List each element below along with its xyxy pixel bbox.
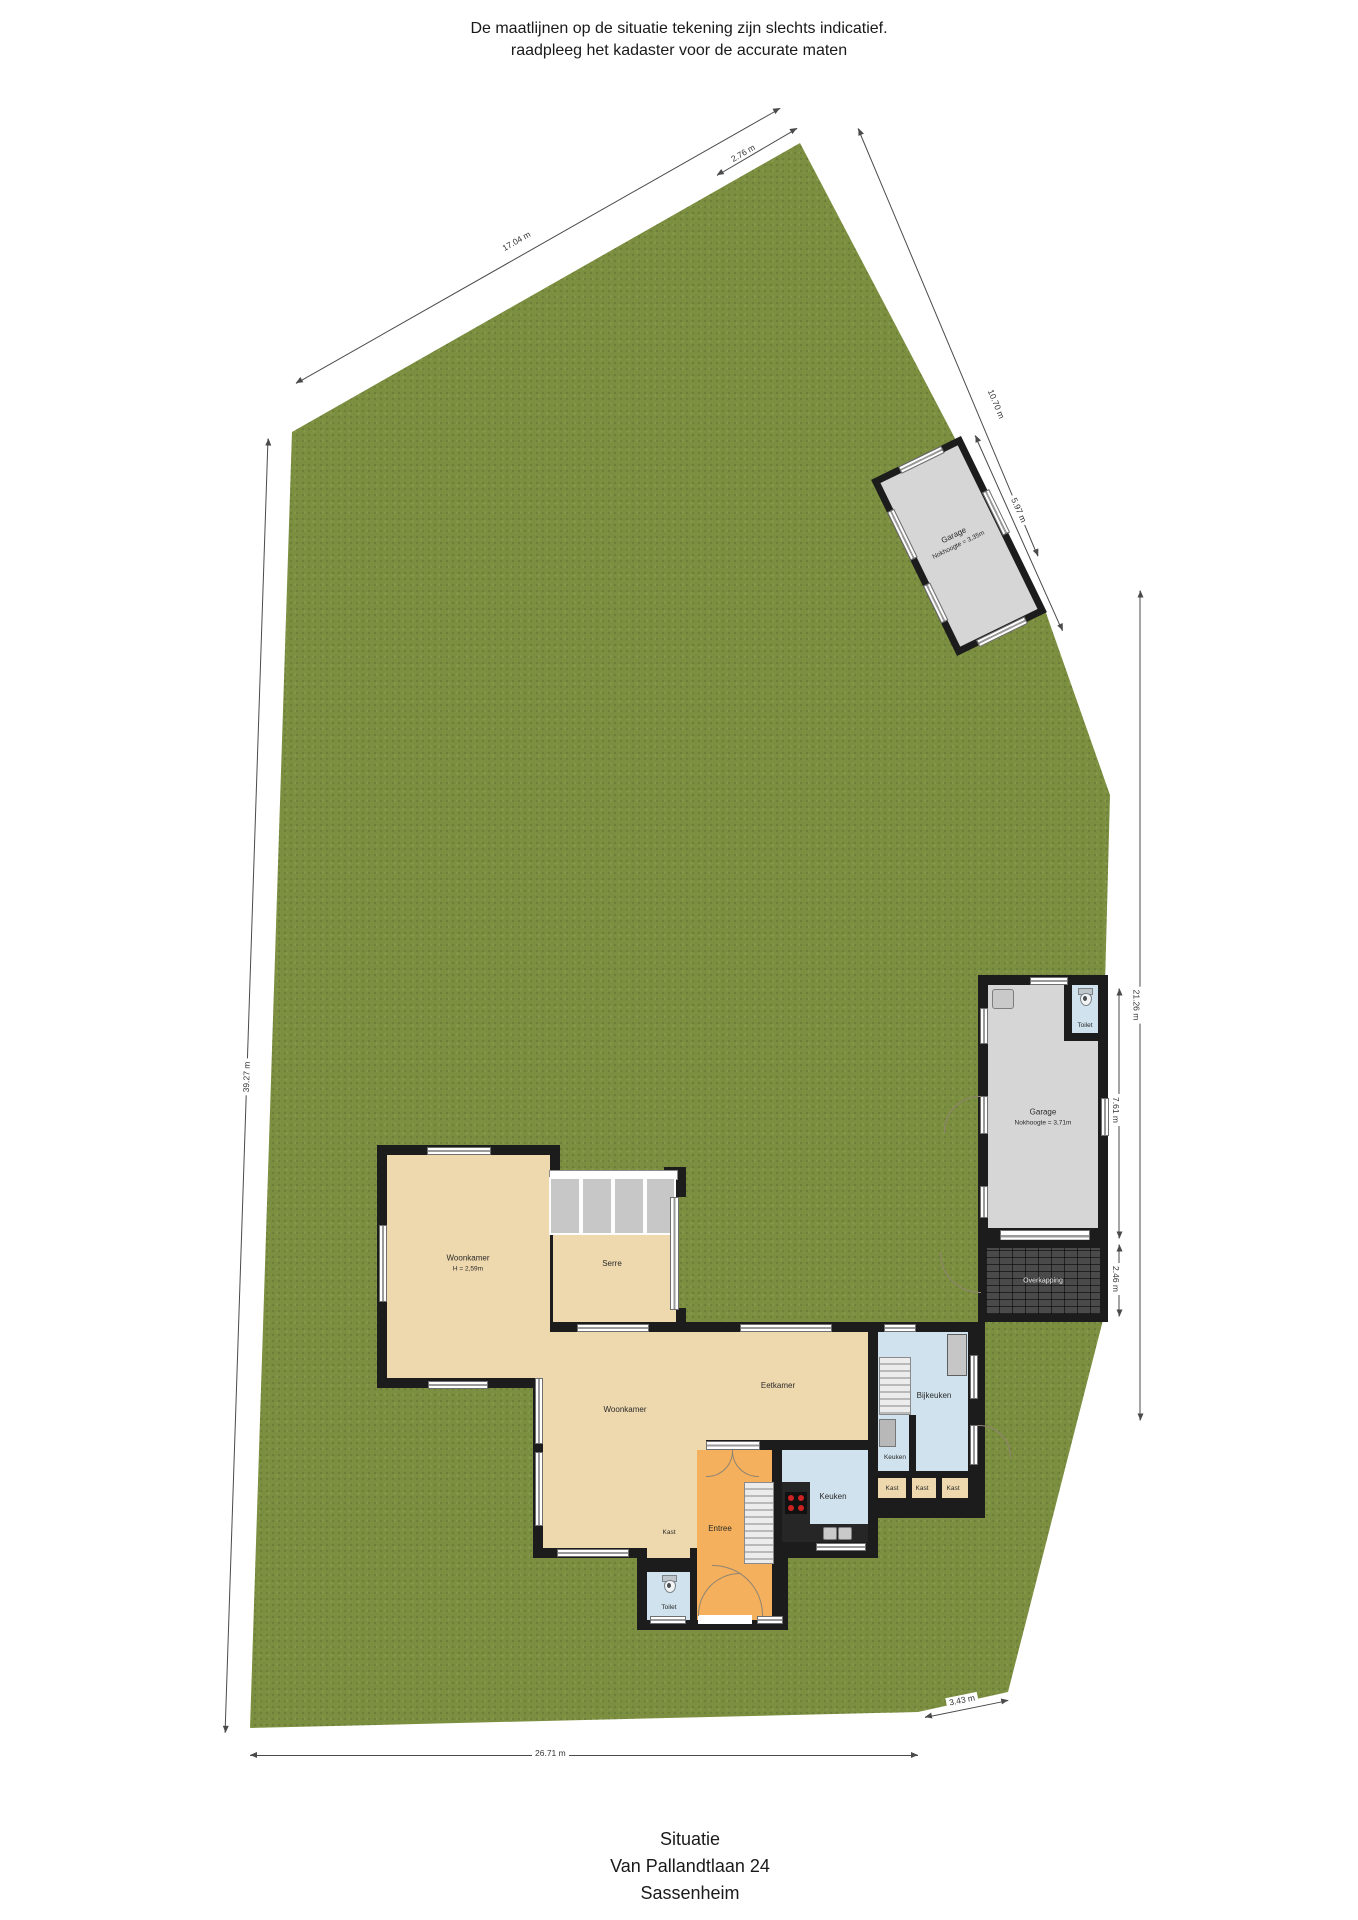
room-label-kast-3: Kast: [946, 1485, 959, 1493]
doorway: [706, 1441, 760, 1450]
plan-title: Situatie Van Pallandtlaan 24 Sassenheim: [0, 1826, 1358, 1907]
room-label-toilet-garage: Toilet: [1077, 1022, 1092, 1030]
dim-label-left: 39.27 m: [241, 1058, 252, 1095]
room-serre: [553, 1235, 676, 1322]
sink-icon: [838, 1527, 852, 1540]
room-label-toilet: Toilet: [661, 1604, 676, 1612]
wall-separator: [906, 1478, 912, 1498]
dim-label-garage-side: 5.97 m: [1008, 493, 1030, 526]
plot-grass: [0, 0, 1358, 1920]
room-label-overkapping: Overkapping: [1023, 1276, 1063, 1285]
dim-label-right: 21.26 m: [1131, 987, 1141, 1024]
disclaimer-line2: raadpleeg het kadaster voor de accurate …: [0, 40, 1358, 62]
wall-separator: [878, 1471, 968, 1478]
room-label-kast-1: Kast: [885, 1485, 898, 1493]
room-label-woonkamer-2: Woonkamer: [604, 1405, 647, 1415]
window: [427, 1147, 491, 1155]
door-opening: [970, 1425, 978, 1465]
window: [816, 1543, 866, 1551]
serre-glass: [581, 1177, 613, 1235]
room-label-eetkamer: Eetkamer: [761, 1381, 795, 1391]
window: [535, 1378, 543, 1444]
staircase: [744, 1482, 774, 1564]
disclaimer: De maatlijnen op de situatie tekening zi…: [0, 18, 1358, 61]
serre-glass: [613, 1177, 645, 1235]
fridge-icon: [947, 1334, 967, 1376]
window: [980, 1186, 988, 1218]
window: [428, 1381, 488, 1389]
staircase: [879, 1357, 911, 1415]
dim-label-upper-right: 10.70 m: [985, 385, 1008, 423]
room-label-woonkamer-1: Woonkamer H = 2,59m: [447, 1254, 490, 1275]
window: [1030, 977, 1068, 985]
window: [757, 1616, 783, 1624]
serre-glass: [549, 1177, 581, 1235]
disclaimer-line1: De maatlijnen op de situatie tekening zi…: [0, 18, 1358, 40]
serre-doorway: [577, 1324, 649, 1332]
room-label-keuken: Keuken: [819, 1492, 846, 1502]
room-label-garage: Garage Nokhoogte = 3,71m: [1015, 1108, 1072, 1129]
front-door-opening: [698, 1615, 752, 1624]
toilet-icon: [662, 1575, 675, 1593]
wall-separator: [909, 1415, 916, 1471]
room-label-serre: Serre: [602, 1259, 622, 1269]
title-line1: Situatie: [0, 1826, 1358, 1853]
dim-line: [250, 1755, 918, 1756]
sink-icon: [823, 1527, 837, 1540]
stove-icon: [785, 1492, 807, 1514]
room-label-kast: Kast: [662, 1529, 675, 1537]
title-line3: Sassenheim: [0, 1880, 1358, 1907]
toilet-icon: [1078, 988, 1091, 1006]
dim-label-bottom: 26.71 m: [532, 1748, 569, 1758]
counter-small: [879, 1419, 896, 1447]
window: [970, 1355, 978, 1399]
window: [980, 1008, 988, 1044]
window: [884, 1324, 916, 1332]
window: [557, 1549, 629, 1557]
title-line2: Van Pallandtlaan 24: [0, 1853, 1358, 1880]
door-opening: [980, 1096, 988, 1134]
window: [740, 1324, 832, 1332]
situatie-plan: De maatlijnen op de situatie tekening zi…: [0, 0, 1358, 1920]
window: [650, 1616, 686, 1624]
wall-separator: [1064, 1033, 1098, 1041]
window: [379, 1225, 387, 1302]
hall-filler: [647, 1450, 690, 1493]
dim-label-overkapping: 2.46 m: [1111, 1263, 1121, 1295]
window: [1101, 1098, 1109, 1136]
room-label-bijkeuken: Bijkeuken: [917, 1391, 952, 1401]
wall-separator: [936, 1478, 942, 1498]
serre-side-window: [670, 1197, 679, 1310]
dim-label-garage-right: 7.61 m: [1111, 1094, 1121, 1126]
room-label-keuken-2: Keuken: [884, 1454, 906, 1462]
room-label-kast-2: Kast: [915, 1485, 928, 1493]
window: [535, 1452, 543, 1526]
room-label-entree: Entree: [708, 1524, 732, 1534]
sink-icon: [992, 989, 1014, 1009]
